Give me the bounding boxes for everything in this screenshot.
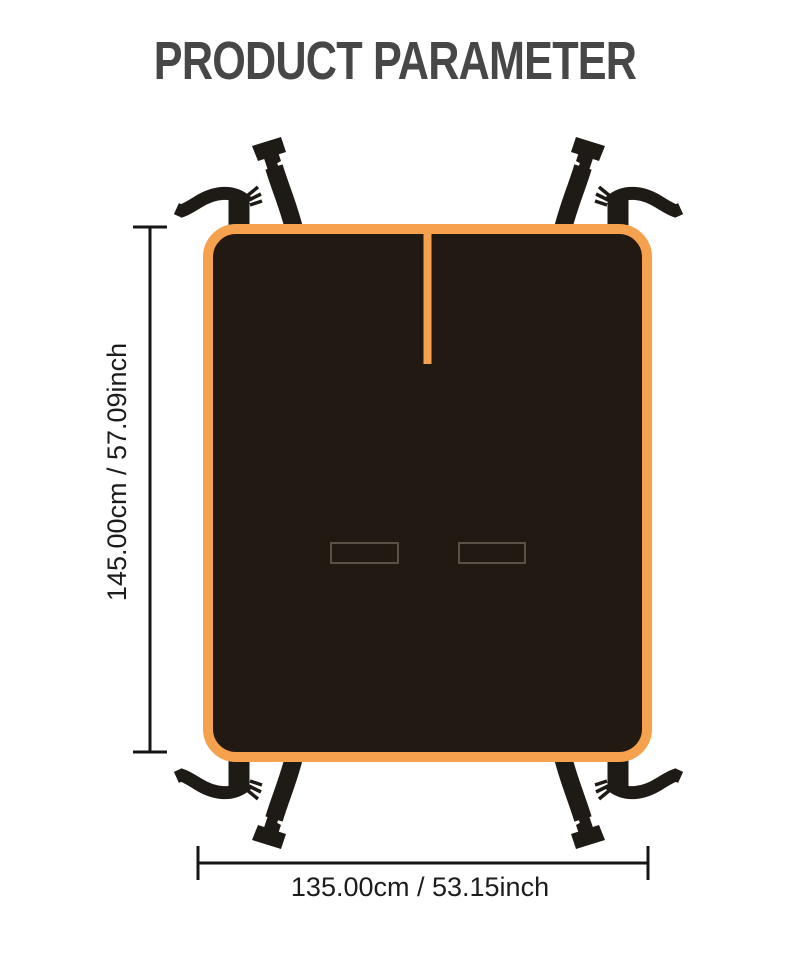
straps-top-right-icon <box>562 137 679 233</box>
straps-bottom-left-icon <box>178 753 295 849</box>
width-dimension-label: 135.00cm / 53.15inch <box>220 872 620 903</box>
height-dimension-line <box>133 227 167 752</box>
product-parameter-page: PRODUCT PARAMETER <box>0 0 790 960</box>
straps-bottom-right-icon <box>562 753 679 849</box>
height-dimension-label: 145.00cm / 57.09inch <box>101 322 133 622</box>
straps-top-left-icon <box>178 137 295 233</box>
